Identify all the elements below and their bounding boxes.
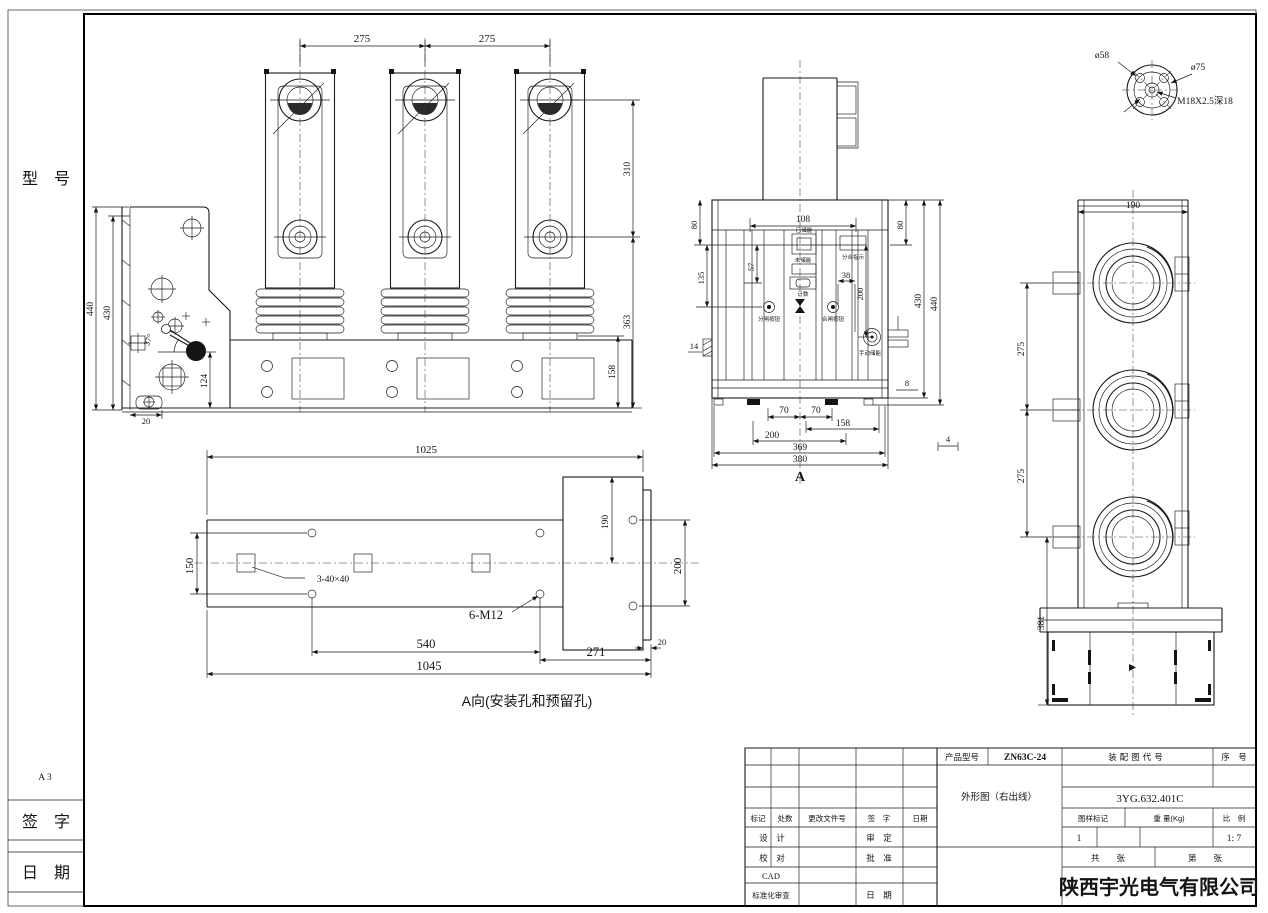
dim-right-381: 381 xyxy=(1037,616,1047,631)
dim-right-275b: 275 xyxy=(1017,469,1027,484)
plan-caption: A向(安装孔和预留孔) xyxy=(462,693,593,709)
tb-company-name: 陕西宇光电气有限公司 xyxy=(1059,875,1259,899)
tb-date-label: 日期 xyxy=(913,814,928,823)
tb-change-doc-label: 更改文件号 xyxy=(808,813,846,823)
dim-section-108: 108 xyxy=(796,215,811,225)
title-block: 产品型号 ZN63C-24 装配图代号 序 号 外形图（右出线） 3YG.632… xyxy=(745,748,1259,906)
dim-section-80-right: 80 xyxy=(895,221,905,230)
tb-sheet-no-label: 第 张 xyxy=(1188,853,1223,863)
label-indicator: 分合指示 xyxy=(842,253,865,261)
front-view: 37° 275 275 310 363 158 440 430 124 20 xyxy=(86,33,642,426)
dim-plan-271: 271 xyxy=(587,645,606,659)
dim-front-363: 363 xyxy=(623,315,633,330)
tb-std-check-label: 标准化审查 xyxy=(752,890,790,900)
dim-section-14: 14 xyxy=(690,341,699,351)
tb-drawing-code: 3YG.632.401C xyxy=(1116,793,1183,805)
dim-right-275a: 275 xyxy=(1017,342,1027,357)
dim-section-57: 57 xyxy=(746,263,756,272)
tb-approve-label: 批 准 xyxy=(866,853,892,863)
tb-total-sheets-label: 共 张 xyxy=(1091,853,1126,863)
tb-assembly-label: 装配图代号 xyxy=(1108,752,1166,762)
dim-plan-20: 20 xyxy=(658,637,667,647)
dim-front-310: 310 xyxy=(623,162,633,177)
label-counter: 计数 xyxy=(797,290,809,298)
dim-plan-150: 150 xyxy=(184,557,196,574)
dim-section-8: 8 xyxy=(905,378,909,388)
dim-plan-200: 200 xyxy=(672,557,684,574)
margin-format-label: A 3 xyxy=(38,773,52,783)
dim-section-369: 369 xyxy=(793,443,808,453)
label-charged: 已储能 xyxy=(796,226,813,234)
dim-front-275-left: 275 xyxy=(354,33,371,45)
label-discharged: 未储能 xyxy=(795,256,812,264)
tb-weight-label: 重 量(Kg) xyxy=(1153,814,1185,823)
drawing-sheet: 型 号 A 3 签 字 日 期 37° 275 275 310 363 158 xyxy=(0,0,1268,913)
label-manual-charge: 手动储能 xyxy=(859,349,882,357)
dim-section-4: 4 xyxy=(946,434,951,444)
dim-side-20: 20 xyxy=(142,416,151,426)
section-view: 已储能 未储能 计数 分闸按钮 合闸按钮 分合指示 手动储能 14 108 80… xyxy=(688,60,958,485)
dim-section-80-left: 80 xyxy=(689,221,699,230)
dim-detail-75: ø75 xyxy=(1191,63,1206,73)
tb-stamp-label: 图样标记 xyxy=(1078,813,1108,823)
tb-check-label: 校 对 xyxy=(759,853,785,863)
dim-section-430: 430 xyxy=(914,294,924,309)
plan-view: 3-40×40 6-M12 1025 150 190 200 540 271 2… xyxy=(184,444,700,709)
tb-review-label: 审 定 xyxy=(866,833,892,843)
tb-scale-label: 比 例 xyxy=(1223,813,1246,823)
dim-plan-1025: 1025 xyxy=(415,444,438,456)
cad-drawing: 型 号 A 3 签 字 日 期 37° 275 275 310 363 158 xyxy=(0,0,1268,913)
flange-detail: ø58 ø75 M18X2.5深18 xyxy=(1095,51,1233,120)
dim-side-124: 124 xyxy=(200,374,210,389)
sheet-frame: 型 号 A 3 签 字 日 期 xyxy=(8,10,1256,906)
dim-detail-thread: M18X2.5深18 xyxy=(1177,96,1233,107)
dim-section-200: 200 xyxy=(855,288,865,301)
dim-section-200b: 200 xyxy=(765,431,780,441)
dim-section-70b: 70 xyxy=(811,406,821,416)
tb-serial-label: 序 号 xyxy=(1221,752,1247,762)
dim-section-135: 135 xyxy=(696,272,706,285)
tb-mark-label: 标记 xyxy=(751,813,766,823)
margin-sign-label: 签 字 xyxy=(22,813,70,831)
label-open-button: 分闸按钮 xyxy=(758,315,781,323)
dim-side-430: 430 xyxy=(103,306,113,321)
dim-section-158: 158 xyxy=(836,419,851,429)
dim-section-440: 440 xyxy=(930,297,940,312)
tb-stamp-value: 1 xyxy=(1077,834,1082,844)
dim-plan-540: 540 xyxy=(417,637,436,651)
label-thread-holes: 6-M12 xyxy=(469,608,503,622)
dim-section-380: 380 xyxy=(793,455,808,465)
dim-right-190: 190 xyxy=(1126,201,1141,211)
tb-scale-value: 1: 7 xyxy=(1227,834,1242,844)
dim-plan-190: 190 xyxy=(601,515,611,530)
dim-section-70a: 70 xyxy=(779,406,789,416)
dim-side-440: 440 xyxy=(86,302,96,317)
tb-date2-label: 日 期 xyxy=(866,890,892,900)
tb-cad-label: CAD xyxy=(762,871,780,881)
dim-plan-1045: 1045 xyxy=(417,659,442,673)
dim-front-275-right: 275 xyxy=(479,33,496,45)
label-square-holes: 3-40×40 xyxy=(317,575,350,585)
right-side-view: 190 275 275 381 xyxy=(1017,190,1222,715)
section-label-A: A xyxy=(795,470,806,485)
dim-angle-37: 37° xyxy=(141,332,155,347)
label-close-button: 合闸按钮 xyxy=(822,315,845,323)
tb-count-label: 处数 xyxy=(778,813,793,823)
tb-product-label: 产品型号 xyxy=(945,752,979,762)
dim-detail-58: ø58 xyxy=(1095,51,1110,61)
tb-drawing-name: 外形图（右出线） xyxy=(961,791,1037,803)
dim-section-38: 38 xyxy=(842,270,851,280)
margin-model-label: 型 号 xyxy=(22,170,70,188)
tb-design-label: 设 计 xyxy=(759,833,785,843)
tb-sign-label: 签 字 xyxy=(868,813,891,823)
tb-product-model: ZN63C-24 xyxy=(1004,753,1046,763)
margin-date-label: 日 期 xyxy=(22,864,70,882)
dim-front-158: 158 xyxy=(608,365,618,380)
